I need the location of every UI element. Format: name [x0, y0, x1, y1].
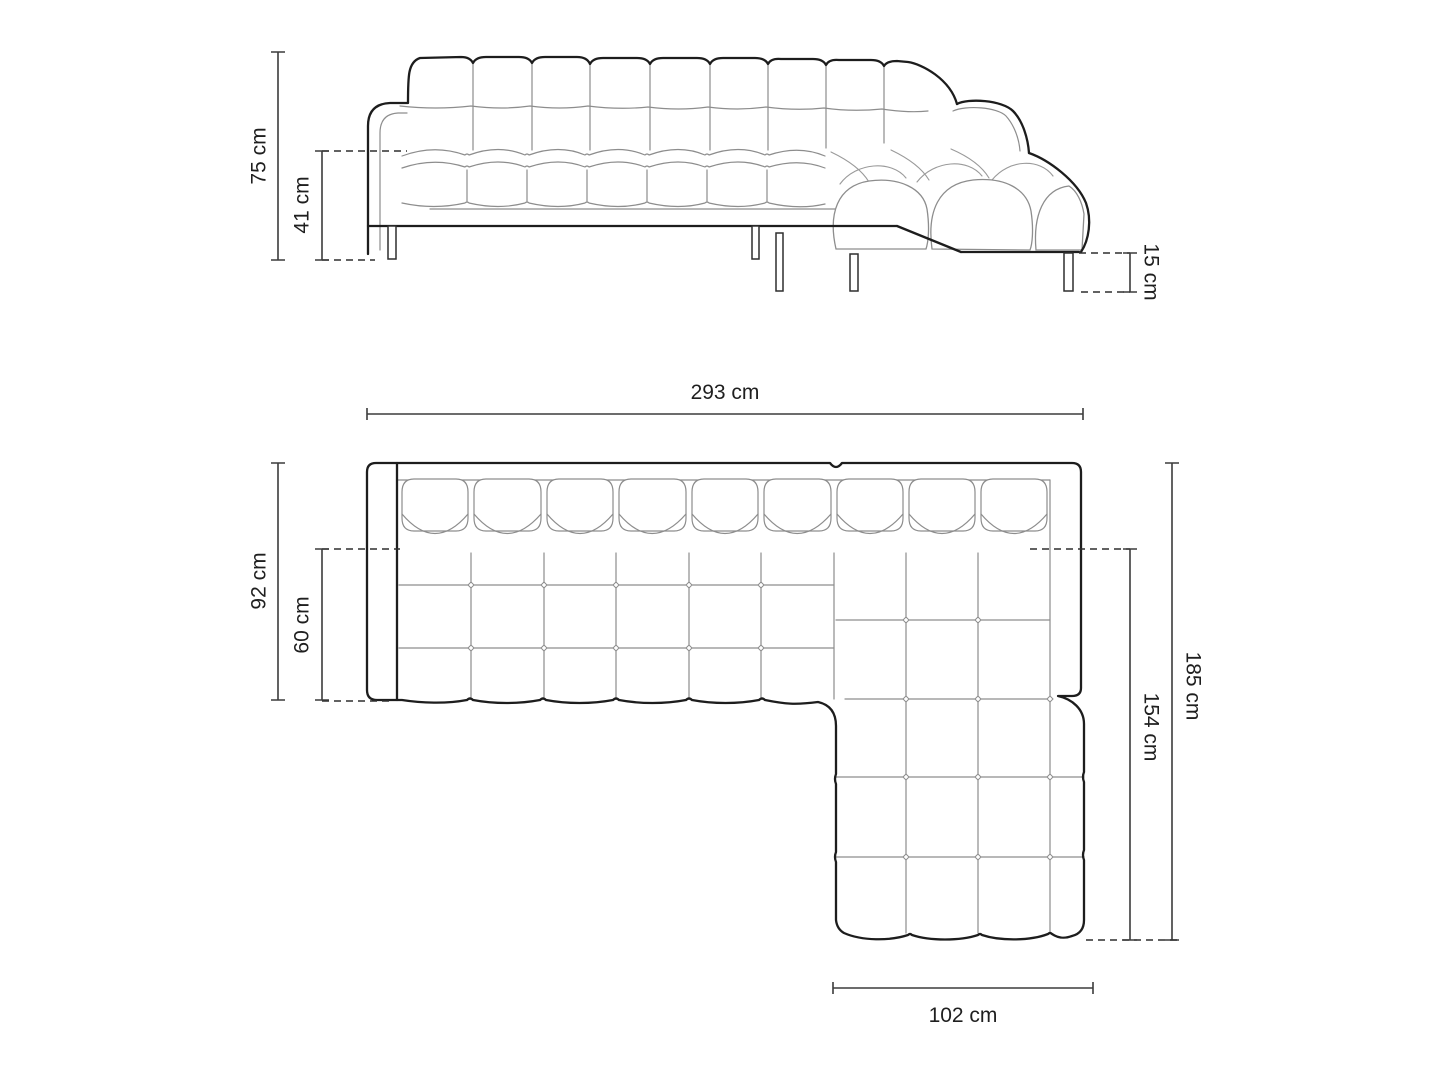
dim-total-height-label: 75 cm	[248, 127, 271, 184]
dim-chaise-inner-length-label: 154 cm	[1139, 693, 1162, 762]
dim-leg-height: 15 cm	[1079, 243, 1162, 300]
dim-total-depth-label: 92 cm	[248, 552, 271, 609]
front-view	[368, 57, 1089, 291]
top-view	[367, 463, 1084, 940]
dimension-drawing-page: 75 cm 41 cm 15 cm 293 cm 92 cm 60 cm	[0, 0, 1449, 1086]
top-view-outline	[367, 463, 1084, 940]
top-view-back-cushions	[402, 479, 1047, 534]
dim-total-width-label: 293 cm	[691, 381, 760, 404]
top-view-grid-lines	[397, 480, 1084, 933]
dim-total-height: 75 cm	[248, 52, 285, 260]
dim-chaise-inner-length: 154 cm	[1030, 549, 1177, 940]
dim-chaise-width-label: 102 cm	[929, 1004, 998, 1027]
dim-leg-height-label: 15 cm	[1139, 243, 1162, 300]
dim-total-depth: 92 cm	[248, 463, 285, 700]
front-view-chaise-cushions	[833, 180, 1084, 250]
dim-seat-depth: 60 cm	[291, 549, 400, 701]
sofa-dimension-drawing: 75 cm 41 cm 15 cm 293 cm 92 cm 60 cm	[0, 0, 1449, 1086]
dim-seat-depth-label: 60 cm	[291, 596, 314, 653]
dim-seat-height-label: 41 cm	[291, 176, 314, 233]
dim-chaise-total-length-label: 185 cm	[1181, 652, 1204, 721]
dim-chaise-width: 102 cm	[833, 982, 1093, 1027]
dim-total-width: 293 cm	[367, 381, 1083, 420]
dim-chaise-total-length: 185 cm	[1165, 463, 1204, 940]
